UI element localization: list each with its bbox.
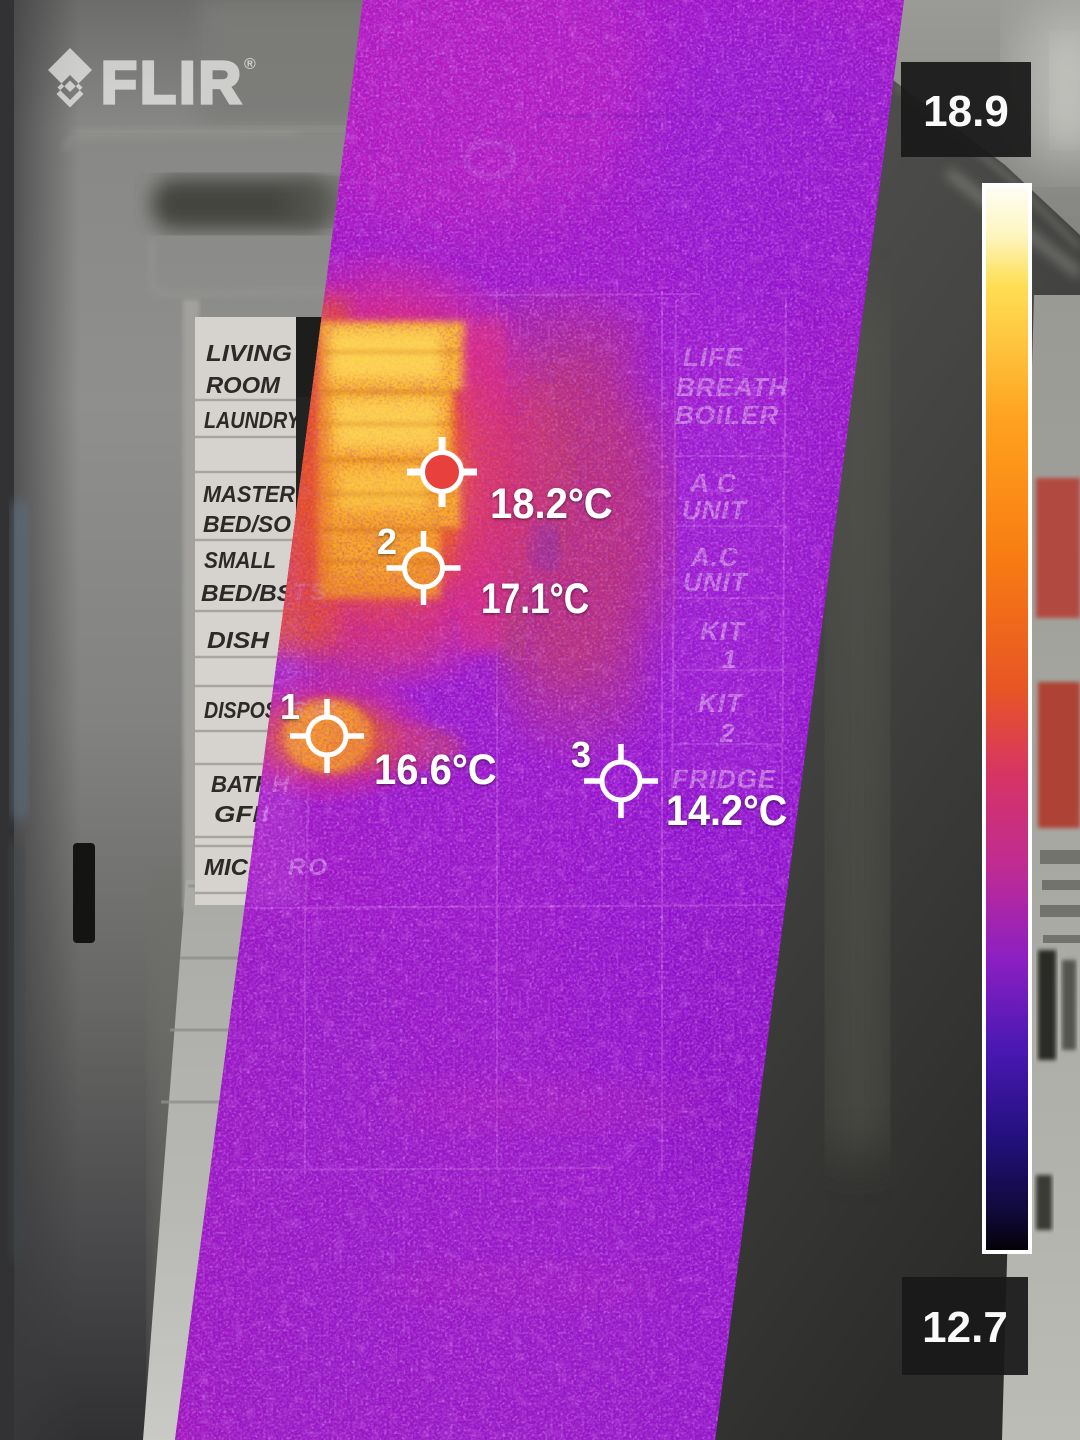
svg-text:GFI: GFI (214, 801, 261, 827)
svg-text:LIVING: LIVING (206, 340, 292, 366)
svg-text:ROOM: ROOM (206, 372, 281, 398)
svg-text:BED/SO: BED/SO (203, 511, 291, 537)
svg-text:MASTER: MASTER (203, 481, 295, 507)
svg-text:14.2°C: 14.2°C (666, 786, 787, 834)
svg-text:12.7: 12.7 (922, 1303, 1008, 1352)
svg-text:18.2°C: 18.2°C (490, 479, 613, 528)
svg-text:2: 2 (377, 521, 397, 562)
svg-text:1: 1 (280, 686, 300, 727)
svg-text:18.9: 18.9 (923, 87, 1009, 136)
svg-text:SMALL: SMALL (204, 547, 276, 573)
svg-text:DISH: DISH (207, 627, 269, 653)
svg-text:BED/BS: BED/BS (201, 580, 294, 606)
svg-text:®: ® (244, 56, 256, 73)
svg-text:FLIR: FLIR (101, 50, 244, 116)
svg-text:LAUNDRY: LAUNDRY (204, 407, 302, 433)
svg-text:16.6°C: 16.6°C (374, 745, 497, 794)
svg-text:17.1°C: 17.1°C (481, 575, 589, 623)
svg-text:3: 3 (571, 734, 591, 775)
